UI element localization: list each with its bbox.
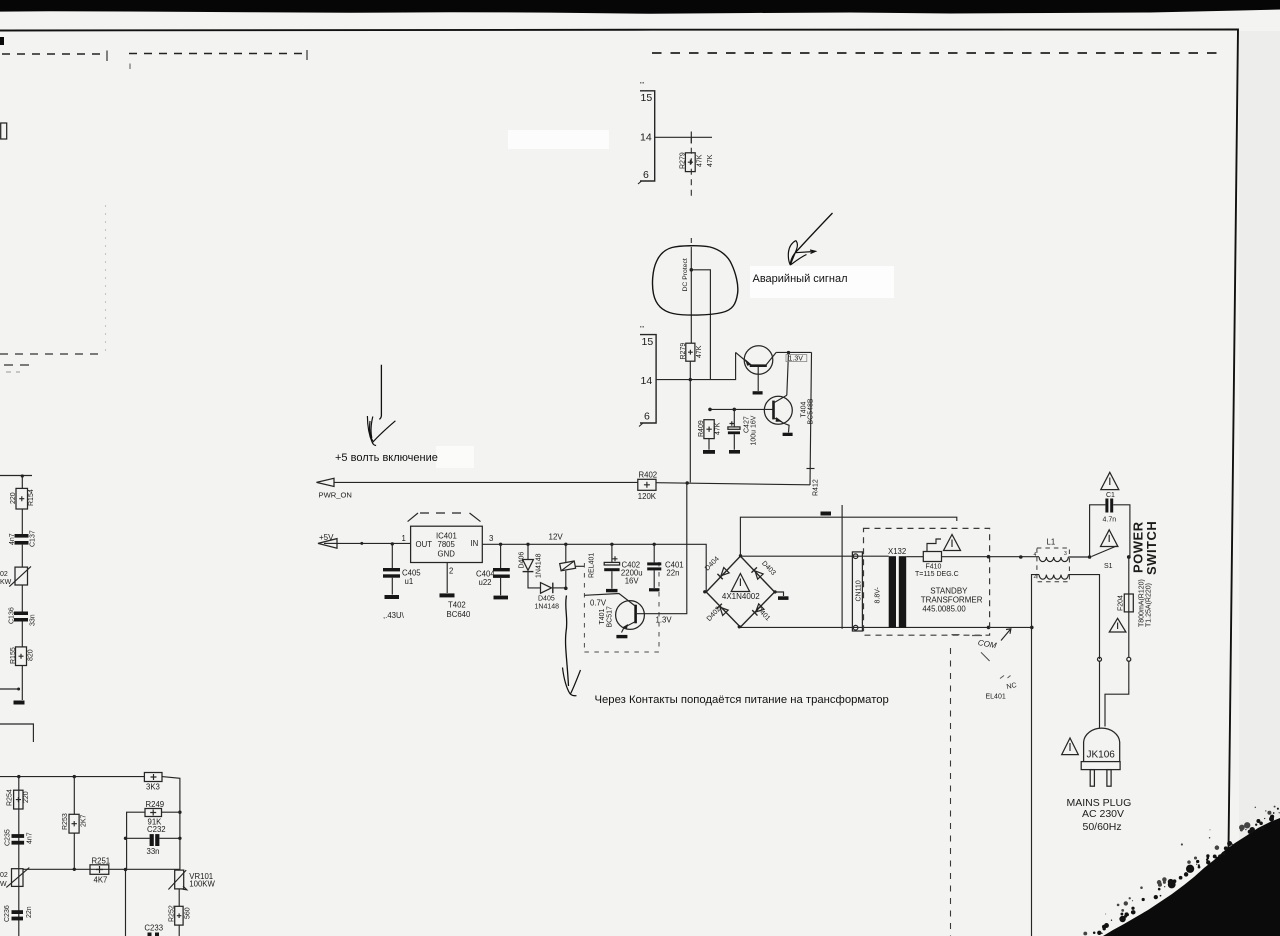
svg-text:R412: R412 [813,479,820,496]
svg-text:JK106: JK106 [1087,750,1116,761]
svg-text:120K: 120K [638,492,657,501]
svg-text:u1: u1 [405,577,414,586]
svg-text:W: W [0,881,7,888]
svg-text:C427: C427 [744,416,751,433]
svg-text:4: 4 [1034,552,1037,558]
svg-text:7805: 7805 [438,540,456,549]
svg-text:220: 220 [23,791,30,803]
svg-text:C1: C1 [1106,492,1115,499]
svg-text:D405: D405 [538,596,555,603]
svg-text:445.0085.00: 445.0085.00 [922,605,966,614]
svg-text:DC Protect: DC Protect [682,258,689,291]
svg-text:R249: R249 [146,800,165,809]
svg-text:C232: C232 [147,825,166,834]
svg-text:T=115 DEG.C: T=115 DEG.C [915,571,959,578]
svg-text:X132: X132 [888,547,906,556]
svg-text:220: 220 [10,492,17,504]
svg-text:22n: 22n [666,569,679,578]
svg-text:POWER: POWER [1130,521,1145,573]
svg-text:R279: R279 [680,343,687,360]
svg-text:CN110: CN110 [856,580,863,601]
svg-text:8.8V-: 8.8V- [875,586,882,603]
svg-text:3: 3 [489,534,493,543]
svg-text:4X1N4002: 4X1N4002 [722,592,760,601]
svg-text:22n: 22n [26,906,33,918]
svg-text:STANDBY: STANDBY [930,587,968,596]
svg-text:+5 волть включение: +5 волть включение [335,452,438,464]
svg-text:R409: R409 [698,420,705,437]
svg-text:OUT: OUT [416,540,433,549]
svg-text:T1.25A(R220): T1.25A(R220) [1146,583,1153,627]
svg-text:33n: 33n [147,847,160,856]
svg-text:47K: 47K [696,345,703,358]
svg-text:1.3V: 1.3V [656,616,673,625]
svg-text:33n: 33n [30,614,37,626]
svg-text:C236: C236 [4,905,11,922]
svg-text:T401: T401 [599,608,606,624]
svg-text:L1: L1 [1047,538,1056,547]
svg-text:3: 3 [1064,551,1067,557]
svg-text:C137: C137 [30,530,37,547]
svg-text:F204: F204 [1117,595,1124,611]
svg-text:R251: R251 [92,857,111,866]
svg-text:T402: T402 [448,601,466,610]
svg-text:T404: T404 [801,401,808,417]
svg-text:50/60Hz: 50/60Hz [1083,821,1122,833]
svg-text:EL401: EL401 [986,693,1006,700]
svg-text:PWR_ON: PWR_ON [319,491,352,500]
svg-text:R279: R279 [680,152,687,169]
svg-text:820: 820 [28,649,35,661]
svg-text:47K: 47K [707,154,714,167]
svg-text:,.43U\: ,.43U\ [383,611,405,620]
svg-text:2K7: 2K7 [81,814,88,827]
svg-text:4K7: 4K7 [94,876,108,885]
svg-text:R253: R253 [62,813,69,830]
svg-text:R254: R254 [7,789,14,806]
svg-text:SWITCH: SWITCH [1144,521,1159,575]
svg-text:u22: u22 [479,578,492,587]
svg-text:2: 2 [449,567,453,576]
svg-text:R155: R155 [10,647,17,664]
svg-text:C233: C233 [144,924,163,933]
svg-text:+5V: +5V [319,533,334,542]
svg-text:100u 16V: 100u 16V [751,415,758,445]
svg-text:02: 02 [0,872,8,879]
svg-text:15: 15 [642,336,654,348]
svg-text:R154: R154 [28,489,35,506]
svg-text:''': ''' [640,326,644,333]
svg-text:KW: KW [0,579,12,586]
svg-text:14: 14 [641,375,653,387]
svg-text:4n7: 4n7 [27,832,34,844]
svg-text:''': ''' [640,82,644,89]
svg-text:1N4148: 1N4148 [535,603,560,610]
svg-text:BC640: BC640 [447,610,472,619]
svg-text:T800mA(R120): T800mA(R120) [1138,579,1145,627]
svg-text:12V: 12V [549,533,564,542]
svg-text:16V: 16V [625,576,640,585]
svg-text:Аварийный сигнал: Аварийный сигнал [753,273,848,285]
svg-text:560: 560 [185,907,192,919]
svg-text:02: 02 [0,571,8,578]
svg-text:1.3V: 1.3V [789,356,804,363]
svg-text:6: 6 [644,411,650,423]
svg-text:1: 1 [402,534,406,543]
svg-text:S1: S1 [1104,563,1113,570]
svg-text:4n7: 4n7 [9,533,16,545]
svg-text:REL401: REL401 [589,553,596,578]
svg-text:IN: IN [471,539,479,548]
svg-text:C136: C136 [9,607,16,624]
svg-text:47K: 47K [715,422,722,435]
svg-text:15: 15 [641,92,653,104]
svg-text:100KW: 100KW [189,880,215,889]
svg-text:R402: R402 [639,471,658,480]
svg-text:R252: R252 [169,905,176,922]
svg-text:D406: D406 [519,552,526,569]
svg-text:14: 14 [640,132,652,144]
svg-text:Через Контакты поподаётся пита: Через Контакты поподаётся питание на тра… [595,694,889,706]
svg-text:6: 6 [643,169,649,181]
svg-text:GND: GND [438,550,456,559]
svg-text:47K: 47K [697,154,704,167]
svg-text:3K3: 3K3 [146,783,160,792]
svg-text:F410: F410 [926,564,942,571]
svg-text:C235: C235 [5,829,12,846]
svg-text:0.7V: 0.7V [590,599,607,608]
svg-text:TRANSFORMER: TRANSFORMER [921,596,983,605]
svg-text:1N4148: 1N4148 [535,553,542,578]
svg-text:AC 230V: AC 230V [1082,808,1124,820]
svg-text:BC517: BC517 [607,606,614,628]
svg-text:4.7n: 4.7n [1103,517,1117,524]
